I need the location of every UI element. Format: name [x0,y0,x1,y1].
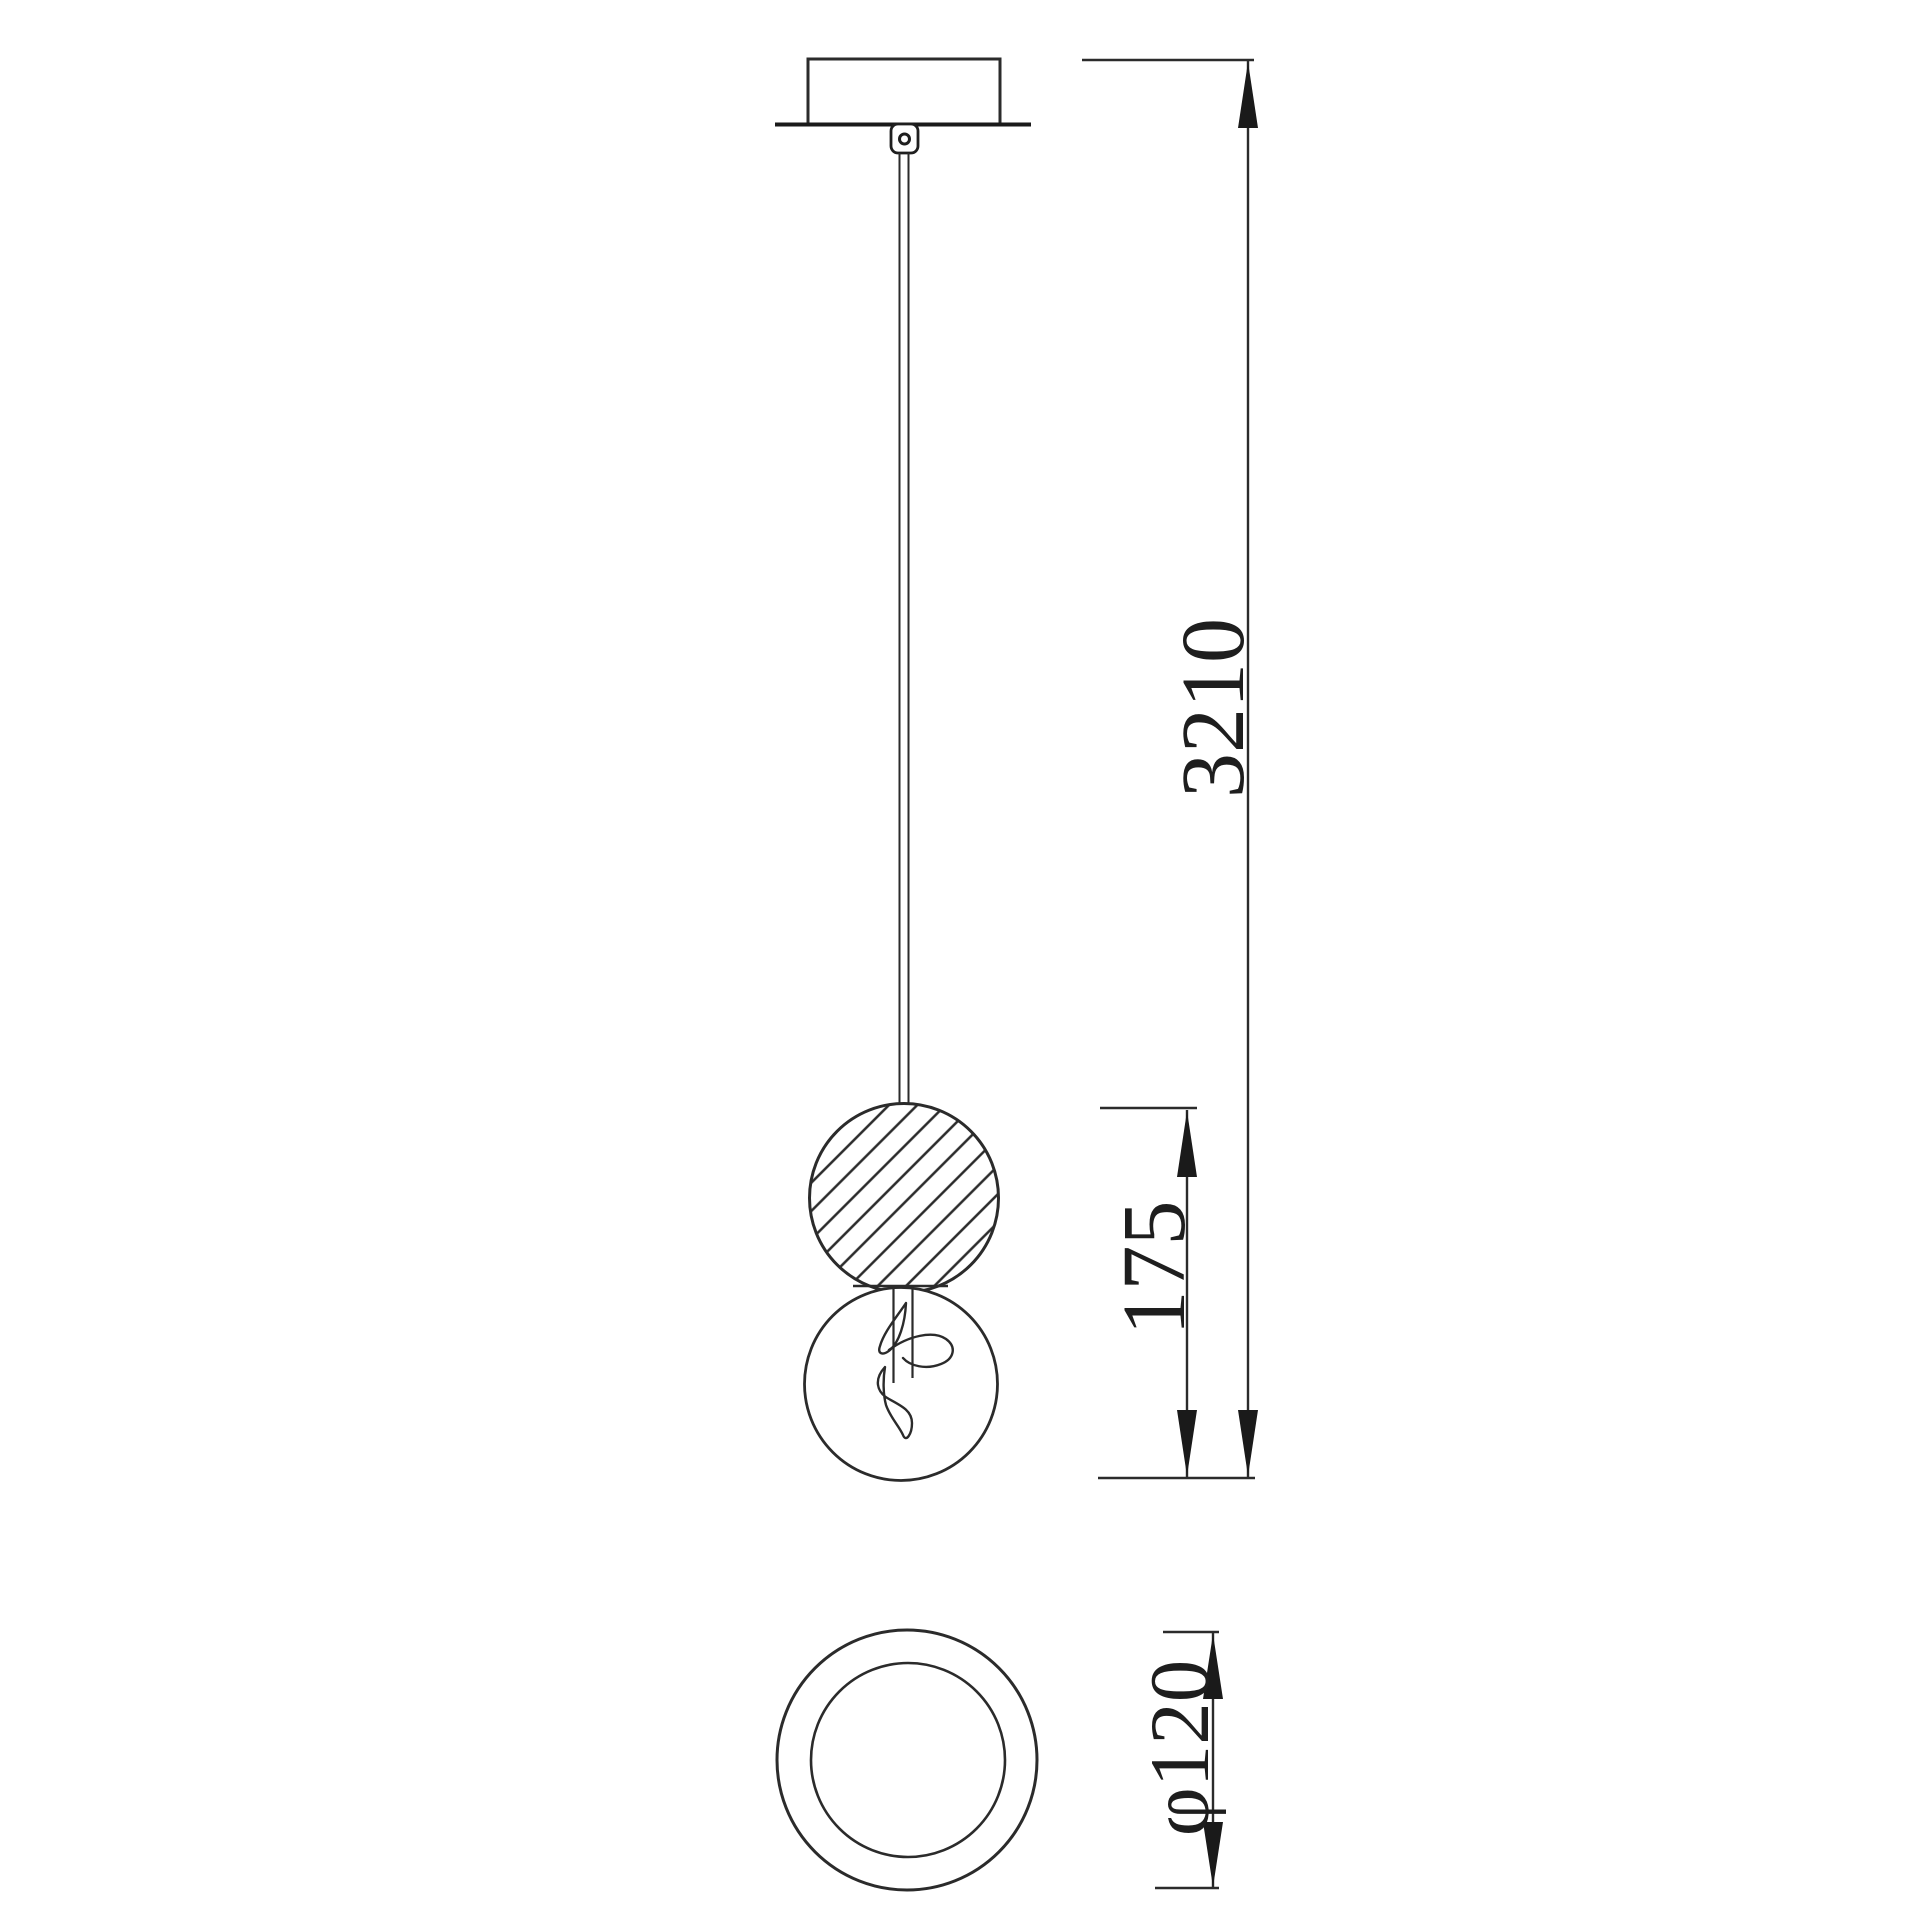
cord-grip [891,124,918,153]
ceiling-canopy [808,59,1000,124]
dimension-label-overall-height: 3210 [1164,618,1263,798]
decorative-ball-hatched [810,1104,999,1293]
arrow-down-icon [1177,1410,1197,1476]
pendant-lamp-dimension-diagram: 3210 175 φ120 [0,0,1920,1920]
bottom-view-inner-ring [811,1663,1005,1857]
arrow-up-icon [1177,1111,1197,1177]
arrow-down-icon [1238,1410,1258,1476]
dimension-label-diameter: φ120 [1133,1660,1227,1837]
glass-bulb-globe [805,1288,998,1481]
dimension-label-fixture-height: 175 [1105,1201,1204,1336]
technical-drawing-page: 3210 175 φ120 [0,0,1920,1920]
arrow-up-icon [1238,62,1258,128]
